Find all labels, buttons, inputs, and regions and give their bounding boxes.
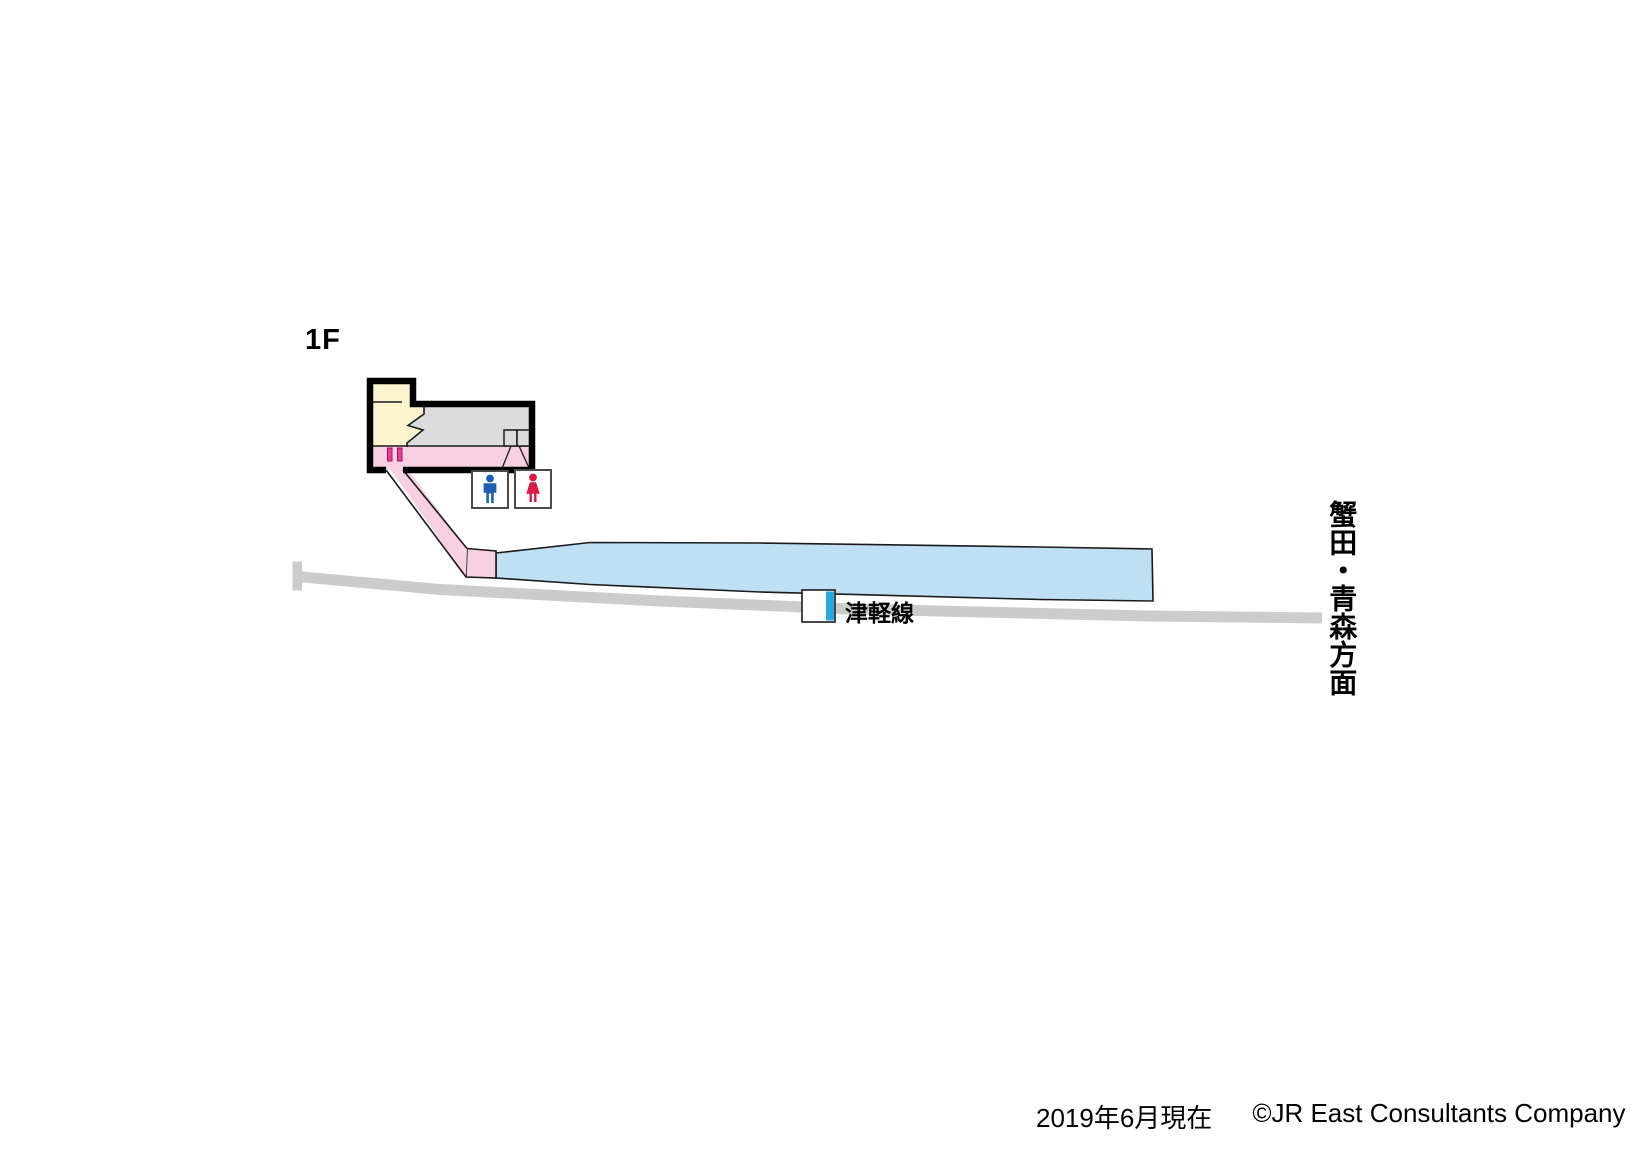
train-position-marker — [802, 590, 835, 622]
direction-label: 蟹田・青森方面 — [1326, 500, 1356, 696]
male-restroom-sign — [472, 471, 508, 508]
floor-label: 1F — [305, 324, 341, 357]
map-date-note: 2019年6月現在 — [1036, 1098, 1212, 1135]
station-floor-map: 1F 津軽線 蟹田・青森方面 2019年6月現在 ©JR East Consul… — [0, 0, 1642, 1162]
restroom-compartment-left — [504, 430, 517, 446]
walkway-landing — [466, 549, 496, 579]
railway-line-label: 津軽線 — [845, 594, 914, 628]
ticket-gate-left — [388, 448, 393, 461]
female-restroom-sign — [515, 470, 551, 508]
copyright-notice: ©JR East Consultants Company — [1252, 1098, 1625, 1135]
ticket-gate-right — [398, 448, 403, 461]
train-marker-stripe — [826, 592, 834, 621]
station-map-canvas — [0, 0, 1642, 1162]
walkway-ramp-left-edge — [386, 470, 466, 577]
footer: 2019年6月現在 ©JR East Consultants Company — [1036, 1098, 1626, 1135]
walkway-ramp — [386, 463, 467, 577]
concourse-area — [370, 446, 532, 470]
